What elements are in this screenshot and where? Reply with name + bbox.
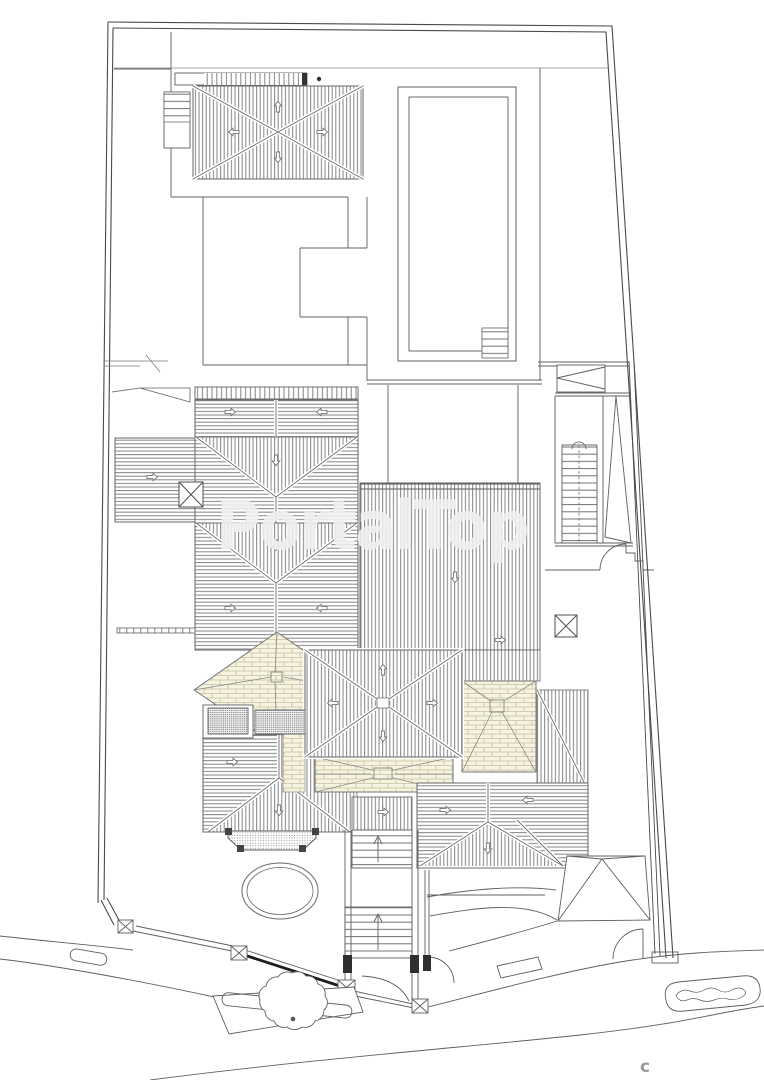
main-stairs <box>343 797 419 1006</box>
shrub-outline <box>676 988 746 1002</box>
street-and-fence <box>0 856 764 1080</box>
terrace-node <box>374 768 392 779</box>
roof-b-left-wing <box>115 438 195 522</box>
building-a-roof <box>193 86 363 179</box>
copyright-mark: c <box>640 1057 650 1077</box>
entry-canopy-pyramid <box>558 856 650 921</box>
roof-f <box>417 783 588 868</box>
terrace-node <box>271 672 282 682</box>
stair-flight-upper <box>352 830 412 868</box>
terrace-brick-strip <box>283 733 305 792</box>
kerb-line <box>0 936 214 997</box>
door-swing-arc <box>613 929 643 959</box>
chimney-x-icon <box>179 482 203 507</box>
wall-post <box>410 955 419 973</box>
wall-post <box>423 955 431 971</box>
fence-line <box>133 926 233 951</box>
point-marker <box>317 77 321 81</box>
terrace-node <box>490 700 504 712</box>
building-a-stair <box>164 92 190 148</box>
bay-post <box>312 828 319 835</box>
site-plan-drawing: PortalTop c <box>0 0 764 1080</box>
ramp-triangle <box>605 396 631 543</box>
wall-post <box>343 955 352 973</box>
garden-pond <box>242 863 318 919</box>
terrace-diamond-right <box>462 681 536 772</box>
long-stair <box>562 445 597 543</box>
bay-post <box>225 828 232 835</box>
bay-post <box>237 845 244 852</box>
arched-door <box>600 544 626 570</box>
garden-path <box>427 888 557 951</box>
building-a <box>114 32 367 381</box>
bay-post <box>299 845 306 852</box>
ramp-wedge <box>112 388 190 402</box>
bay-window <box>225 828 319 852</box>
chimney-x-icon <box>555 615 577 637</box>
pool-stair <box>482 328 508 358</box>
band-end-marker <box>302 73 307 85</box>
roof-e <box>303 648 464 759</box>
door-swing-arc <box>362 976 409 1001</box>
road-island <box>69 948 108 966</box>
driveway-apron <box>497 957 542 978</box>
roof-e-node <box>377 698 389 708</box>
roof-b-eave-band <box>195 387 358 399</box>
plan-svg <box>0 0 764 1080</box>
roof-b-main <box>195 387 358 650</box>
garden-wall <box>117 628 195 633</box>
planting-bed-right <box>665 976 760 1012</box>
tree-trunk-dot <box>291 1017 296 1022</box>
boundary-end-post <box>652 952 678 963</box>
building-a-pergola-band <box>175 73 321 85</box>
pool-area <box>367 68 542 483</box>
door-swing-arc <box>428 957 454 983</box>
